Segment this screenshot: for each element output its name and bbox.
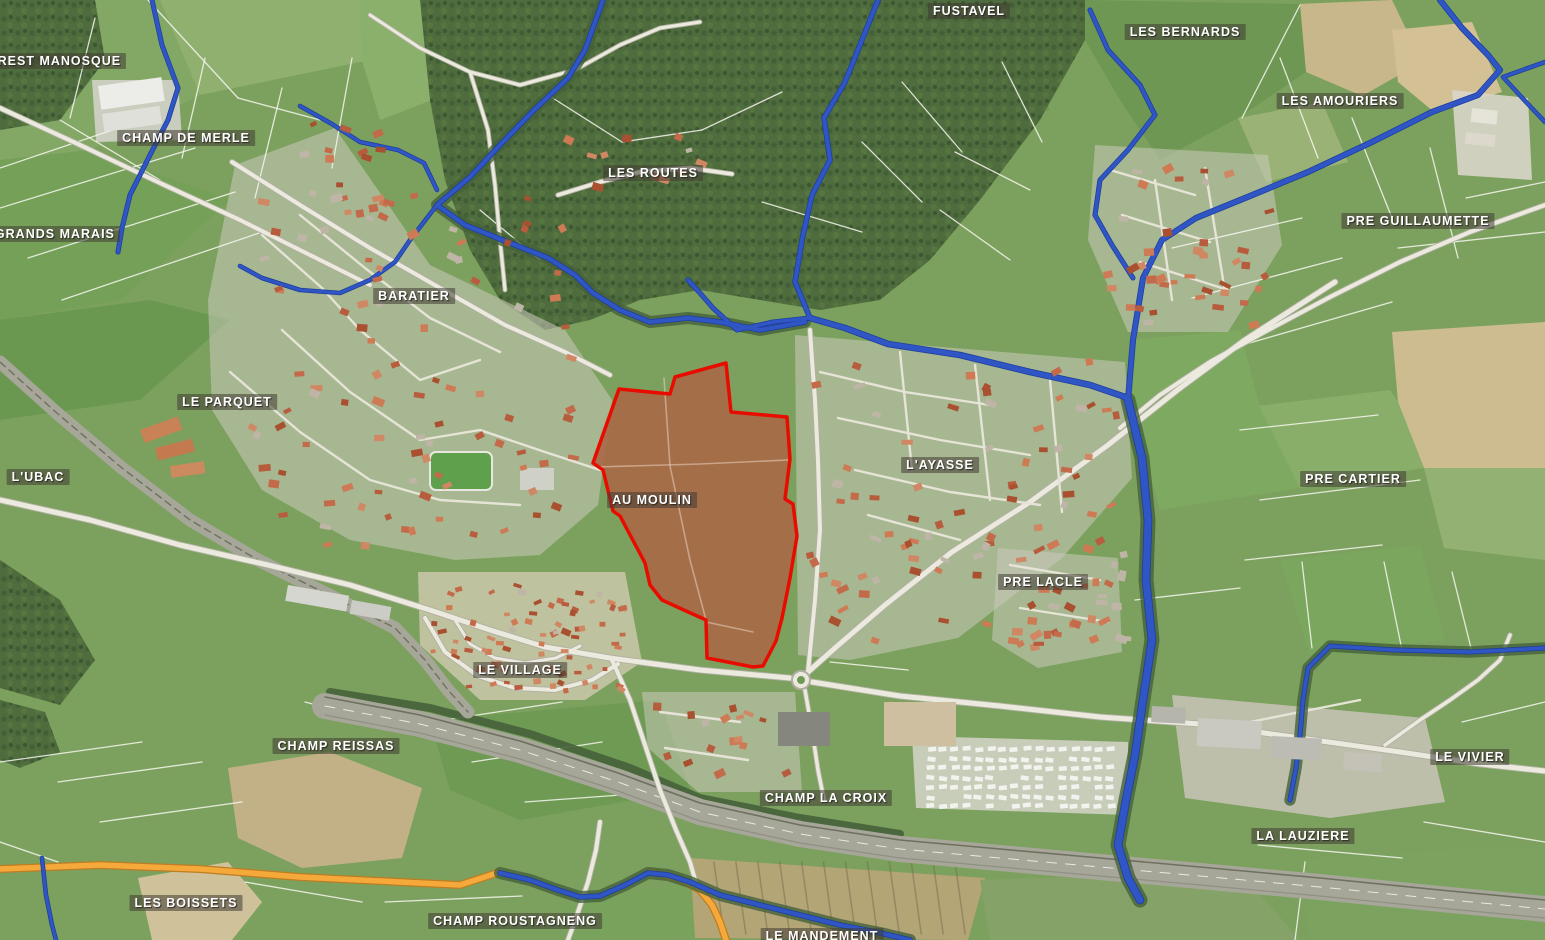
map-canvas[interactable]	[0, 0, 1545, 940]
map-viewport[interactable]: OREST MANOSQUECHAMP DE MERLEFUSTAVELLES …	[0, 0, 1545, 940]
